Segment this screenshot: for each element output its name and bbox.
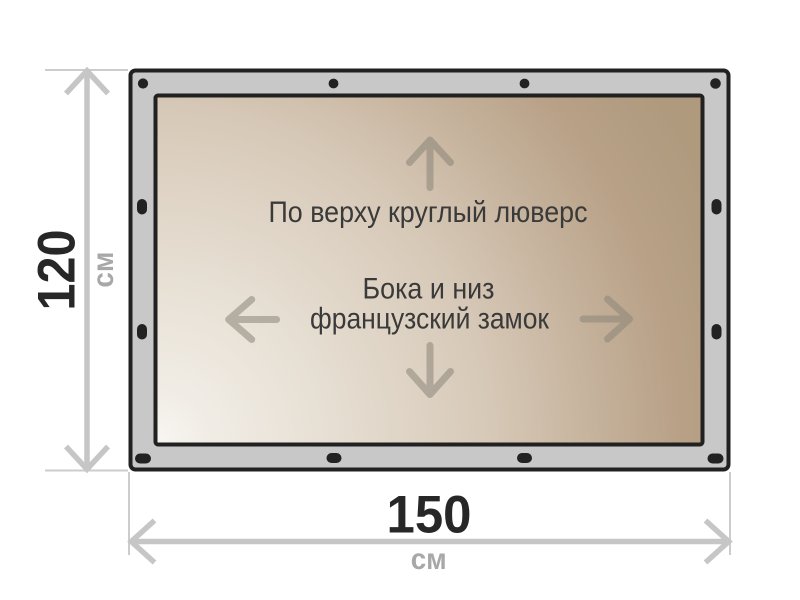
svg-text:французский замок: французский замок <box>310 302 550 335</box>
svg-text:см: см <box>87 252 120 288</box>
svg-text:По верху круглый люверс: По верху круглый люверс <box>269 196 588 229</box>
svg-text:120: 120 <box>28 230 87 311</box>
svg-text:Бока и низ: Бока и низ <box>363 272 495 305</box>
svg-text:150: 150 <box>387 486 472 545</box>
svg-text:см: см <box>411 543 447 576</box>
